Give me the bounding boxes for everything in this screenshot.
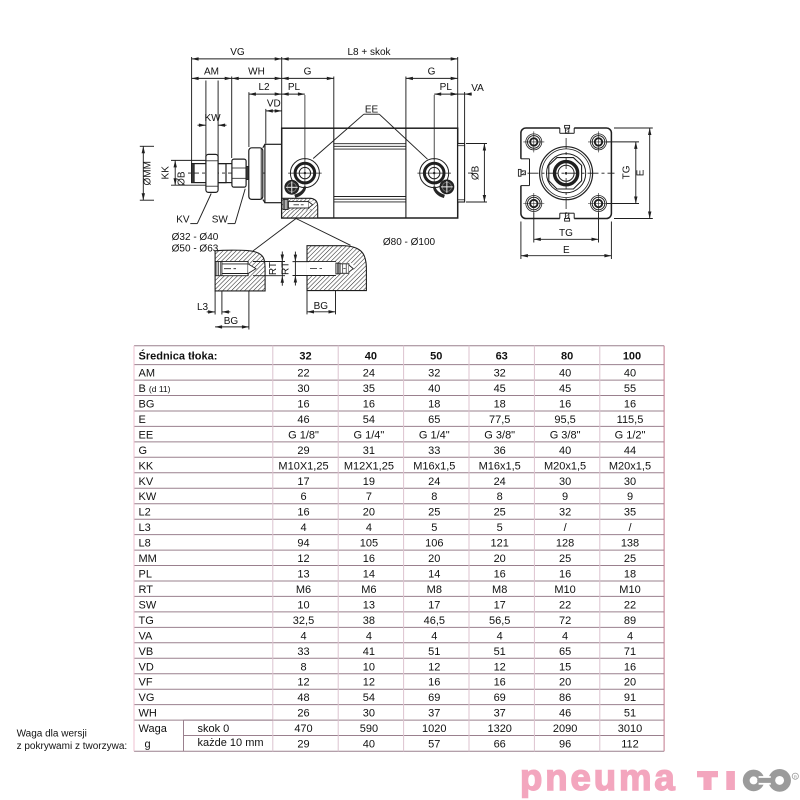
svg-text:29: 29 xyxy=(297,739,309,751)
svg-text:Ø50 - Ø63: Ø50 - Ø63 xyxy=(172,243,219,254)
svg-text:WH: WH xyxy=(248,67,265,78)
svg-text:16: 16 xyxy=(494,569,506,581)
svg-text:13: 13 xyxy=(297,569,309,581)
svg-text:12: 12 xyxy=(297,553,309,565)
svg-text:112: 112 xyxy=(621,739,639,751)
svg-text:4: 4 xyxy=(300,630,306,642)
svg-text:32: 32 xyxy=(559,507,571,519)
svg-text:9: 9 xyxy=(562,491,568,503)
svg-text:65: 65 xyxy=(428,414,440,426)
svg-text:8: 8 xyxy=(497,491,503,503)
svg-text:G 1/4": G 1/4" xyxy=(419,429,450,441)
svg-text:55: 55 xyxy=(624,383,636,395)
svg-text:16: 16 xyxy=(428,677,440,689)
svg-text:65: 65 xyxy=(559,646,571,658)
svg-text:138: 138 xyxy=(621,538,639,550)
svg-text:94: 94 xyxy=(297,538,309,550)
svg-text:VF: VF xyxy=(139,677,153,689)
svg-text:AM: AM xyxy=(204,67,219,78)
svg-text:32: 32 xyxy=(299,350,311,362)
svg-text:TG: TG xyxy=(139,615,154,627)
svg-text:100: 100 xyxy=(623,350,641,362)
svg-text:16: 16 xyxy=(297,399,309,411)
svg-text:51: 51 xyxy=(428,646,440,658)
svg-text:VG: VG xyxy=(230,47,245,58)
svg-text:121: 121 xyxy=(491,538,509,550)
svg-text:31: 31 xyxy=(363,445,375,457)
svg-text:4: 4 xyxy=(562,630,568,642)
svg-text:57: 57 xyxy=(428,739,440,751)
svg-text:8: 8 xyxy=(300,661,306,673)
svg-text:16: 16 xyxy=(297,507,309,519)
svg-text:12: 12 xyxy=(297,677,309,689)
svg-text:69: 69 xyxy=(494,692,506,704)
svg-text:Ø80 - Ø100: Ø80 - Ø100 xyxy=(383,237,436,248)
svg-text:18: 18 xyxy=(624,569,636,581)
svg-text:M20x1,5: M20x1,5 xyxy=(609,460,651,472)
svg-text:35: 35 xyxy=(363,383,375,395)
svg-text:KK: KK xyxy=(139,460,154,472)
svg-text:12: 12 xyxy=(494,661,506,673)
svg-text:18: 18 xyxy=(494,399,506,411)
svg-text:40: 40 xyxy=(624,368,636,380)
svg-text:ØB: ØB xyxy=(471,165,482,180)
svg-text:G 1/2": G 1/2" xyxy=(615,429,646,441)
svg-text:KW: KW xyxy=(204,113,221,124)
svg-text:G 3/8": G 3/8" xyxy=(484,429,515,441)
svg-text:L2: L2 xyxy=(139,507,151,519)
svg-text:37: 37 xyxy=(494,708,506,720)
svg-text:/: / xyxy=(564,522,568,534)
svg-text:24: 24 xyxy=(494,476,506,488)
svg-text:16: 16 xyxy=(559,399,571,411)
svg-text:M8: M8 xyxy=(427,584,442,596)
svg-text:G 3/8": G 3/8" xyxy=(550,429,581,441)
svg-text:115,5: 115,5 xyxy=(617,414,644,426)
svg-text:30: 30 xyxy=(624,476,636,488)
svg-text:2090: 2090 xyxy=(553,723,577,735)
svg-text:skok 0: skok 0 xyxy=(198,723,230,735)
svg-text:M12X1,25: M12X1,25 xyxy=(344,460,394,472)
svg-text:18: 18 xyxy=(428,399,440,411)
svg-text:SW: SW xyxy=(212,214,229,225)
svg-text:22: 22 xyxy=(559,599,571,611)
svg-text:86: 86 xyxy=(559,692,571,704)
svg-text:E: E xyxy=(636,169,647,176)
svg-text:30: 30 xyxy=(559,476,571,488)
svg-text:KV: KV xyxy=(176,214,190,225)
svg-text:VD: VD xyxy=(139,661,154,673)
svg-text:24: 24 xyxy=(428,476,440,488)
svg-text:54: 54 xyxy=(363,414,375,426)
svg-text:22: 22 xyxy=(624,599,636,611)
svg-text:36: 36 xyxy=(494,445,506,457)
svg-text:KK: KK xyxy=(161,166,172,180)
svg-text:ØMM: ØMM xyxy=(143,161,154,185)
svg-text:33: 33 xyxy=(428,445,440,457)
svg-text:17: 17 xyxy=(428,599,440,611)
svg-text:26: 26 xyxy=(297,708,309,720)
svg-text:12: 12 xyxy=(428,661,440,673)
svg-text:SW: SW xyxy=(139,599,157,611)
svg-text:37: 37 xyxy=(428,708,440,720)
svg-text:66: 66 xyxy=(494,739,506,751)
svg-text:VA: VA xyxy=(471,83,484,94)
svg-text:20: 20 xyxy=(363,507,375,519)
svg-text:50: 50 xyxy=(430,350,442,362)
svg-text:VD: VD xyxy=(267,99,281,110)
svg-text:45: 45 xyxy=(559,383,571,395)
svg-text:G: G xyxy=(139,445,148,457)
svg-text:128: 128 xyxy=(556,538,574,550)
svg-text:KW: KW xyxy=(139,491,157,503)
svg-text:38: 38 xyxy=(363,615,375,627)
svg-text:96: 96 xyxy=(559,739,571,751)
svg-text:4: 4 xyxy=(627,630,633,642)
svg-text:4: 4 xyxy=(300,522,306,534)
svg-text:17: 17 xyxy=(297,476,309,488)
svg-text:KV: KV xyxy=(139,476,154,488)
svg-text:M6: M6 xyxy=(361,584,376,596)
svg-text:32,5: 32,5 xyxy=(293,615,314,627)
svg-text:29: 29 xyxy=(297,445,309,457)
svg-text:24: 24 xyxy=(363,368,375,380)
svg-text:470: 470 xyxy=(294,723,312,735)
svg-text:pneuma: pneuma xyxy=(520,757,678,798)
svg-text:20: 20 xyxy=(494,553,506,565)
svg-text:30: 30 xyxy=(297,383,309,395)
svg-text:89: 89 xyxy=(624,615,636,627)
svg-text:77,5: 77,5 xyxy=(489,414,510,426)
svg-text:TG: TG xyxy=(559,228,573,239)
svg-text:51: 51 xyxy=(494,646,506,658)
svg-text:46: 46 xyxy=(559,708,571,720)
svg-text:16: 16 xyxy=(494,677,506,689)
svg-text:16: 16 xyxy=(559,569,571,581)
svg-text:72: 72 xyxy=(559,615,571,627)
svg-text:L8 + skok: L8 + skok xyxy=(347,47,391,58)
svg-text:z pokrywami z tworzywa:: z pokrywami z tworzywa: xyxy=(17,741,128,752)
svg-text:BG: BG xyxy=(224,316,239,327)
svg-text:1320: 1320 xyxy=(487,723,511,735)
svg-text:20: 20 xyxy=(559,677,571,689)
svg-text:9: 9 xyxy=(627,491,633,503)
svg-text:Waga: Waga xyxy=(139,723,168,735)
svg-text:32: 32 xyxy=(428,368,440,380)
svg-text:25: 25 xyxy=(494,507,506,519)
svg-text:3010: 3010 xyxy=(618,723,642,735)
svg-text:41: 41 xyxy=(363,646,375,658)
svg-text:5: 5 xyxy=(497,522,503,534)
svg-text:10: 10 xyxy=(297,599,309,611)
svg-text:4: 4 xyxy=(431,630,437,642)
svg-text:40: 40 xyxy=(428,383,440,395)
svg-text:M16x1,5: M16x1,5 xyxy=(479,460,521,472)
svg-text:PL: PL xyxy=(288,82,301,93)
svg-text:44: 44 xyxy=(624,445,636,457)
svg-text:M10X1,25: M10X1,25 xyxy=(278,460,328,472)
svg-text:M20x1,5: M20x1,5 xyxy=(544,460,586,472)
svg-text:46: 46 xyxy=(297,414,309,426)
svg-text:M10: M10 xyxy=(619,584,640,596)
svg-text:BG: BG xyxy=(314,301,329,312)
svg-text:E: E xyxy=(139,414,146,426)
svg-text:ØB: ØB xyxy=(177,171,188,186)
svg-text:M16x1,5: M16x1,5 xyxy=(413,460,455,472)
svg-text:69: 69 xyxy=(428,692,440,704)
svg-text:33: 33 xyxy=(297,646,309,658)
svg-text:M10: M10 xyxy=(554,584,575,596)
svg-text:4: 4 xyxy=(366,522,372,534)
svg-text:46,5: 46,5 xyxy=(424,615,445,627)
svg-text:40: 40 xyxy=(365,350,377,362)
svg-text:G: G xyxy=(304,67,312,78)
svg-text:PL: PL xyxy=(139,569,152,581)
svg-text:35: 35 xyxy=(624,507,636,519)
svg-text:10: 10 xyxy=(363,661,375,673)
svg-text:106: 106 xyxy=(425,538,443,550)
svg-text:16: 16 xyxy=(363,399,375,411)
svg-text:14: 14 xyxy=(428,569,440,581)
svg-text:590: 590 xyxy=(360,723,378,735)
svg-text:91: 91 xyxy=(624,692,636,704)
svg-text:40: 40 xyxy=(559,368,571,380)
svg-text:20: 20 xyxy=(624,677,636,689)
svg-text:M6: M6 xyxy=(296,584,311,596)
svg-text:VG: VG xyxy=(139,692,155,704)
svg-text:4: 4 xyxy=(366,630,372,642)
svg-text:G: G xyxy=(428,67,436,78)
svg-text:Waga dla wersji: Waga dla wersji xyxy=(17,729,87,740)
svg-text:20: 20 xyxy=(428,553,440,565)
svg-text:EE: EE xyxy=(139,429,154,441)
svg-text:każde 10 mm: każde 10 mm xyxy=(198,737,264,749)
svg-text:80: 80 xyxy=(561,350,573,362)
svg-text:71: 71 xyxy=(624,646,636,658)
svg-text:6: 6 xyxy=(300,491,306,503)
svg-text:RT: RT xyxy=(268,262,279,275)
svg-text:13: 13 xyxy=(363,599,375,611)
svg-text:4: 4 xyxy=(497,630,503,642)
svg-text:63: 63 xyxy=(496,350,508,362)
svg-text:BG: BG xyxy=(139,399,155,411)
svg-text:5: 5 xyxy=(431,522,437,534)
svg-text:VB: VB xyxy=(139,646,154,658)
svg-text:95,5: 95,5 xyxy=(554,414,575,426)
svg-text:12: 12 xyxy=(363,677,375,689)
svg-text:L8: L8 xyxy=(139,538,151,550)
svg-text:M8: M8 xyxy=(492,584,507,596)
svg-text:25: 25 xyxy=(559,553,571,565)
svg-text:56,5: 56,5 xyxy=(489,615,510,627)
svg-text:19: 19 xyxy=(363,476,375,488)
svg-text:L3: L3 xyxy=(139,522,151,534)
svg-text:16: 16 xyxy=(624,399,636,411)
svg-text:8: 8 xyxy=(431,491,437,503)
svg-text:MM: MM xyxy=(139,553,157,565)
svg-text:RT: RT xyxy=(281,262,292,275)
svg-text:45: 45 xyxy=(494,383,506,395)
svg-text:22: 22 xyxy=(297,368,309,380)
svg-text:RT: RT xyxy=(139,584,154,596)
svg-text:7: 7 xyxy=(366,491,372,503)
svg-text:51: 51 xyxy=(624,708,636,720)
svg-text:16: 16 xyxy=(363,553,375,565)
svg-text:L2: L2 xyxy=(258,82,270,93)
svg-text:32: 32 xyxy=(494,368,506,380)
svg-text:G 1/4": G 1/4" xyxy=(353,429,384,441)
svg-text:R: R xyxy=(794,774,798,780)
svg-text:g: g xyxy=(145,739,151,751)
svg-text:40: 40 xyxy=(363,739,375,751)
svg-text:G 1/8": G 1/8" xyxy=(288,429,319,441)
svg-text:1020: 1020 xyxy=(422,723,446,735)
svg-text:54: 54 xyxy=(363,692,375,704)
svg-text:E: E xyxy=(563,245,570,256)
svg-text:Ø32 - Ø40: Ø32 - Ø40 xyxy=(172,232,219,243)
svg-text:25: 25 xyxy=(624,553,636,565)
svg-text:40: 40 xyxy=(559,445,571,457)
svg-text:15: 15 xyxy=(559,661,571,673)
svg-text:105: 105 xyxy=(360,538,378,550)
svg-text:16: 16 xyxy=(624,661,636,673)
svg-text:WH: WH xyxy=(139,708,157,720)
svg-text:Średnica tłoka:: Średnica tłoka: xyxy=(139,349,218,362)
svg-text:48: 48 xyxy=(297,692,309,704)
svg-text:AM: AM xyxy=(139,368,156,380)
svg-text:PL: PL xyxy=(440,82,453,93)
svg-text:25: 25 xyxy=(428,507,440,519)
svg-text:17: 17 xyxy=(494,599,506,611)
svg-text:L3: L3 xyxy=(197,302,209,313)
svg-text:14: 14 xyxy=(363,569,375,581)
svg-text:30: 30 xyxy=(363,708,375,720)
svg-text:B (d 11): B (d 11) xyxy=(139,383,171,395)
svg-text:TG: TG xyxy=(622,165,633,179)
svg-text:/: / xyxy=(628,522,632,534)
svg-text:VA: VA xyxy=(139,630,154,642)
